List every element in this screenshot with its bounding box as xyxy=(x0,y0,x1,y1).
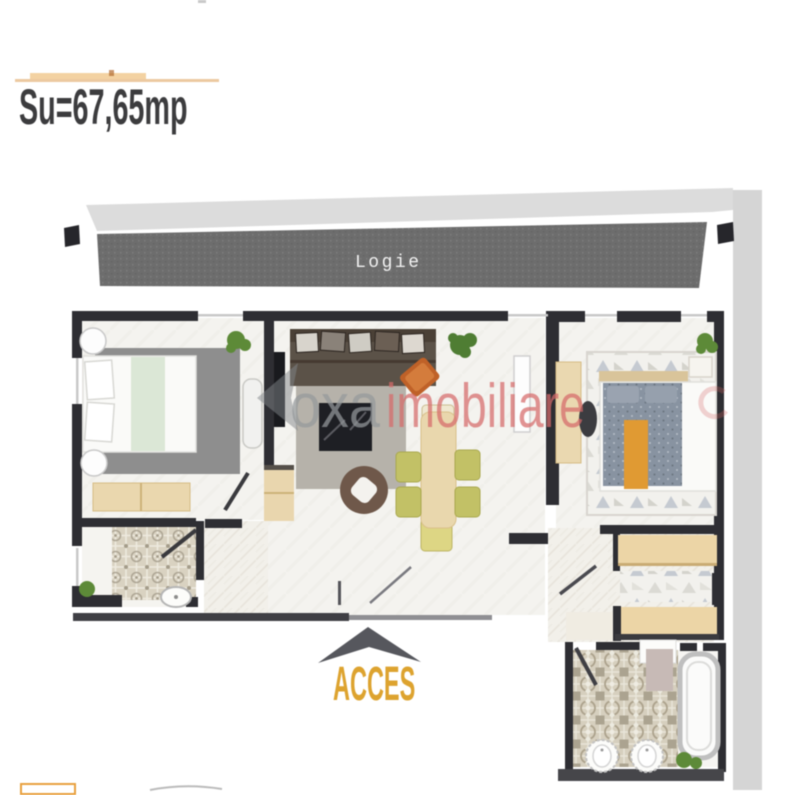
svg-text:Su=67,65mp: Su=67,65mp xyxy=(19,79,188,135)
svg-text:Logie: Logie xyxy=(355,253,422,273)
svg-text:imobiliare: imobiliare xyxy=(386,370,585,440)
svg-text:ACCES: ACCES xyxy=(333,658,415,711)
svg-text:oxa: oxa xyxy=(290,372,380,440)
